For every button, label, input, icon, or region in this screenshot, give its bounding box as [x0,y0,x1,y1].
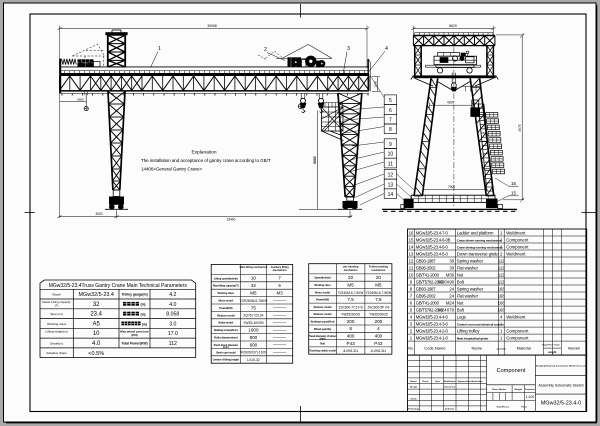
svg-text:Ladder and platform: Ladder and platform [457,230,494,235]
svg-text:M5: M5 [375,283,382,288]
svg-text:14406<General Gantry Crane>: 14406<General Gantry Crane> [141,167,202,172]
svg-text:Φ26X6X37)-1670: Φ26X6X37)-1670 [241,351,267,355]
svg-text:Total: Total [554,344,559,347]
svg-text:4.0: 4.0 [92,341,101,347]
svg-text:Single Piece: Single Piece [542,345,553,347]
svg-text:24: 24 [449,286,454,291]
svg-text:———: ——— [273,305,287,310]
svg-text:Marker: Marker [410,381,417,383]
svg-text:———: ——— [273,335,287,340]
svg-text:400: 400 [375,334,383,339]
svg-text:(mm): (mm) [320,337,326,340]
svg-text:400: 400 [347,334,355,339]
svg-text:Component: Component [506,335,529,340]
svg-text:MGw32/5-23.4-6-0: MGw32/5-23.4-6-0 [416,244,449,249]
svg-text:Depth(m): Depth(m) [50,341,63,345]
svg-text:9000: 9000 [313,156,317,164]
svg-text:ZSC600-5P i=6: ZSC600-5P i=6 [367,305,389,309]
svg-text:LX10-32: LX10-32 [247,358,260,362]
svg-text:MGw32/5-23.4-3-0: MGw32/5-23.4-3-0 [416,321,449,326]
svg-text:Rail: Rail [320,341,325,345]
svg-text:GB/T41-2000: GB/T41-2000 [416,300,440,305]
svg-text:Lifting speed(m/min): Lifting speed(m/min) [214,276,238,280]
svg-text:Wheel quantity: Wheel quantity [314,327,332,331]
svg-text:14: 14 [409,244,414,249]
svg-text:30: 30 [449,258,454,263]
svg-text:4: 4 [377,326,380,331]
svg-text:Dongying Huasheng Construction: Dongying Huasheng Construction Machinery… [536,365,587,368]
svg-text:GB95-2002: GB95-2002 [416,293,437,298]
svg-text:8: 8 [389,127,392,133]
svg-text:weight: weight [548,350,556,354]
svg-text:112: 112 [169,341,177,347]
svg-text:Modification: Modification [444,380,457,383]
svg-text:1600: 1600 [248,328,259,333]
svg-text:Flat washer: Flat washer [457,265,479,270]
svg-text:Weldment: Weldment [506,251,526,256]
svg-text:Limiter of lifting height: Limiter of lifting height [213,358,239,362]
svg-text:YWZ5-400/90: YWZ5-400/90 [243,321,264,325]
svg-text:Reducer model: Reducer model [314,305,332,309]
svg-text:20: 20 [348,275,354,280]
svg-text:(m): (m) [141,303,146,307]
svg-text:MGw32/5-23.4-5-0: MGw32/5-23.4-5-0 [416,251,449,256]
svg-text:Pieces: Pieces [422,381,429,383]
svg-text:Assembly Schematic Sketch: Assembly Schematic Sketch [538,383,583,387]
svg-text:Working class: Working class [47,322,67,326]
svg-text:(m): (m) [141,313,146,317]
svg-text:MGw32/5-23.4-7-0: MGw32/5-23.4-7-0 [416,230,449,235]
svg-text:mechanism: mechanism [344,269,359,272]
svg-text:Reducer model: Reducer model [217,313,235,317]
svg-text:112: 112 [498,279,505,284]
svg-text:2: 2 [264,47,267,53]
svg-text:Down transverse girder: Down transverse girder [457,251,500,256]
svg-text:4200: 4200 [447,101,454,105]
svg-text:Steel rope model: Steel rope model [216,350,236,354]
svg-text:Total Pieces: Total Pieces [496,405,509,408]
svg-text:Lifting height(m): Lifting height(m) [46,329,68,333]
svg-text:20: 20 [376,275,382,280]
svg-text:Piece: Piece [521,406,527,408]
svg-text:7.5: 7.5 [347,297,354,302]
svg-text:Year-Month-Date: Year-Month-Date [467,380,484,383]
svg-text:15: 15 [409,237,414,242]
svg-text:Authorize: Authorize [445,408,455,411]
svg-text:Nut: Nut [457,300,464,305]
svg-text:9: 9 [389,142,392,148]
svg-text:Phase Marker: Phase Marker [492,389,506,391]
svg-text:32: 32 [93,302,100,308]
svg-text:MGw32/5-23.4-4-0: MGw32/5-23.4-4-0 [416,314,449,319]
svg-text:13: 13 [388,182,394,188]
svg-text:7: 7 [389,118,392,124]
svg-text:Motor model: Motor model [218,299,233,303]
svg-text:9575: 9575 [518,124,522,131]
svg-text:10: 10 [251,276,257,281]
svg-text:———: ——— [273,350,287,355]
svg-text:8620: 8620 [449,24,457,28]
svg-text:M30: M30 [446,272,455,277]
svg-text:112: 112 [498,265,505,270]
svg-text:4: 4 [385,46,388,52]
svg-text:Bolt: Bolt [457,279,465,284]
svg-text:———: ——— [273,342,287,347]
svg-text:mechanism: mechanism [372,269,387,272]
svg-text:15: 15 [511,191,517,196]
svg-text:112: 112 [498,272,505,277]
svg-text:GB93-1987: GB93-1987 [416,258,437,263]
svg-text:Power(KW): Power(KW) [316,298,329,302]
svg-text:Design: Design [410,387,418,389]
svg-text:Motor model: Motor model [315,290,330,294]
svg-text:Power(KW): Power(KW) [219,306,232,310]
svg-text:JLXK6-311: JLXK6-311 [371,349,387,353]
svg-text:3.0: 3.0 [169,321,176,327]
svg-text:Material: Material [517,346,531,351]
svg-text:MGw32/5-23.4: MGw32/5-23.4 [79,292,114,298]
svg-text:10: 10 [93,331,100,337]
svg-text:Weldment: Weldment [506,230,526,235]
svg-text:P43: P43 [374,341,383,346]
svg-text:5: 5 [389,98,392,104]
svg-text:M3: M3 [277,290,284,295]
svg-text:Control room and electrical sy: Control room and electrical system [457,322,504,326]
svg-text:Code Name: Code Name [424,346,446,351]
svg-text:ZQ75 i=23.34: ZQ75 i=23.34 [243,314,263,318]
svg-text:MGw32/5-23.4-6-0B: MGw32/5-23.4-6-0B [416,237,451,242]
svg-text:23.4: 23.4 [90,312,102,318]
svg-text:200: 200 [347,319,355,324]
svg-text:GB95-2002: GB95-2002 [416,265,437,270]
svg-text:ZSC600-77.5 i=6: ZSC600-77.5 i=6 [339,305,363,309]
svg-text:10: 10 [409,272,414,277]
svg-text:M24: M24 [446,300,455,305]
svg-text:30: 30 [449,265,454,270]
svg-text:Component: Component [497,368,526,374]
svg-text:168: 168 [498,293,506,298]
svg-text:7.5: 7.5 [375,297,382,302]
svg-text:YZ160M-6-7.5KW: YZ160M-6-7.5KW [366,291,392,295]
svg-text:Component: Component [506,328,529,333]
svg-text:GB/T41-2000: GB/T41-2000 [416,272,440,277]
svg-text:———: ——— [273,298,287,303]
svg-text:MGw32/5-23.4-0: MGw32/5-23.4-0 [541,401,581,407]
svg-text:YZR280M-6-75KW: YZR280M-6-75KW [239,299,268,303]
svg-text:YZ160M-6-7.5KW: YZ160M-6-7.5KW [338,291,364,295]
svg-text:(T): (T) [55,304,59,308]
svg-text:M30X90: M30X90 [438,279,454,284]
svg-text:Adaptive Slope: Adaptive Slope [46,351,67,355]
svg-text:16: 16 [409,230,414,235]
svg-text:Speed(m/min): Speed(m/min) [314,276,330,280]
svg-text:Check: Check [410,398,417,400]
svg-text:168: 168 [498,300,506,305]
svg-text:5600: 5600 [77,97,84,101]
svg-text:(m): (m) [142,322,147,326]
svg-text:Remark: Remark [568,347,580,351]
svg-text:Reducer model: Reducer model [314,312,332,316]
svg-text:Name: Name [471,346,482,351]
svg-text:Component: Component [506,237,529,242]
svg-text:Technology: Technology [408,409,420,411]
svg-text:M24X70: M24X70 [438,307,454,312]
svg-text:YWZ5200/25: YWZ5200/25 [341,313,360,317]
svg-text:MGw32/5-23.4-2-0: MGw32/5-23.4-2-0 [416,328,449,333]
svg-text:13: 13 [409,251,414,256]
svg-text:M5: M5 [347,283,354,288]
svg-text:No.: No. [408,347,414,351]
svg-text:11: 11 [409,265,414,270]
svg-text:12: 12 [409,258,414,263]
svg-text:168: 168 [498,307,506,312]
svg-text:8: 8 [349,326,352,331]
svg-text:8.058: 8.058 [166,312,179,318]
svg-text:75: 75 [251,305,257,310]
svg-text:3000: 3000 [95,212,102,216]
svg-text:112: 112 [498,258,505,263]
svg-text:Braking torque(N·m): Braking torque(N·m) [311,320,335,324]
svg-text:mechanism: mechanism [273,269,288,272]
svg-text:Quantity: Quantity [497,348,507,351]
svg-text:(KN): (KN) [131,333,137,337]
svg-text:Explanation: Explanation [191,149,216,155]
svg-text:3: 3 [347,46,350,52]
svg-text:P43: P43 [347,341,356,346]
svg-text:Braking torque(N·m): Braking torque(N·m) [214,328,238,332]
svg-text:———: ——— [273,327,287,332]
svg-text:1:100: 1:100 [526,395,535,399]
svg-text:Roller diameter(mm): Roller diameter(mm) [214,336,238,340]
svg-text:600: 600 [250,342,258,347]
svg-text:800: 800 [250,335,258,340]
svg-text:23400: 23400 [227,218,236,222]
svg-text:———: ——— [273,320,287,325]
svg-text:Crane driving running mechanis: Crane driving running mechanism [457,245,503,249]
svg-text:14: 14 [388,192,394,198]
svg-text:M5: M5 [250,291,257,296]
svg-text:Crane driven running mechanism: Crane driven running mechanism [457,238,502,242]
svg-text:Traveling switch model: Traveling switch model [309,349,336,353]
svg-text:A5: A5 [93,322,101,328]
svg-text:Spring washer: Spring washer [457,258,484,263]
svg-text:Document: Document [444,386,455,389]
svg-text:Main longitudinal girder: Main longitudinal girder [457,336,489,340]
svg-text:Brake model: Brake model [218,321,233,325]
svg-text:MGw32/5-23.4Truss Gantry Crane: MGw32/5-23.4Truss Gantry Crane Main Tech… [49,283,188,289]
svg-text:Total Power(KW): Total Power(KW) [121,341,147,345]
svg-text:Legs: Legs [457,314,466,319]
svg-text:(mm): (mm) [223,346,229,349]
svg-text:Working class: Working class [314,283,331,287]
svg-text:32: 32 [251,283,257,288]
svg-text:Component: Component [506,244,529,249]
svg-text:24: 24 [449,293,454,298]
svg-text:6: 6 [389,108,392,114]
svg-text:4.0: 4.0 [169,302,176,308]
svg-text:16: 16 [511,181,517,186]
svg-text:———: ——— [273,313,287,318]
svg-text:Proportion: Proportion [525,388,536,391]
svg-text:10: 10 [388,152,394,158]
svg-text:Spring washer: Spring washer [457,286,484,291]
svg-text:Trolley gauge(m): Trolley gauge(m) [121,293,147,297]
svg-text:11: 11 [388,161,393,167]
svg-text:Lifting trolley: Lifting trolley [457,328,481,333]
svg-text:Model: Model [52,292,61,296]
svg-text:MGw32/5-23.4-1-0: MGw32/5-23.4-1-0 [416,335,449,340]
svg-text:200: 200 [375,319,383,324]
svg-text:Main lifting mechanism: Main lifting mechanism [240,266,268,269]
svg-text:Nut: Nut [457,272,464,277]
svg-text:Flat washer: Flat washer [457,293,479,298]
svg-text:The installation and acceptanc: The installation and acceptance of gantr… [141,158,271,163]
svg-text:Working class: Working class [218,291,235,295]
svg-text:1: 1 [158,46,161,52]
svg-text:Weight: Weight [515,388,523,391]
svg-text:<0.5%: <0.5% [88,351,104,357]
svg-text:30068: 30068 [207,24,217,28]
svg-text:Span (m): Span (m) [50,312,63,316]
svg-text:JLXK6-311: JLXK6-311 [343,349,359,353]
svg-text:YWZ5200/25: YWZ5200/25 [369,313,388,317]
svg-text:12: 12 [388,173,394,179]
svg-text:Bolt: Bolt [457,307,465,312]
svg-text:Max.lifting capacity(T): Max.lifting capacity(T) [213,284,239,288]
svg-text:7000: 7000 [448,185,455,189]
svg-text:168: 168 [498,286,506,291]
svg-text:Weldment: Weldment [506,314,526,319]
svg-text:17.0: 17.0 [168,331,178,337]
svg-text:4.2: 4.2 [169,292,176,298]
svg-text:GB93-1987: GB93-1987 [416,286,437,291]
